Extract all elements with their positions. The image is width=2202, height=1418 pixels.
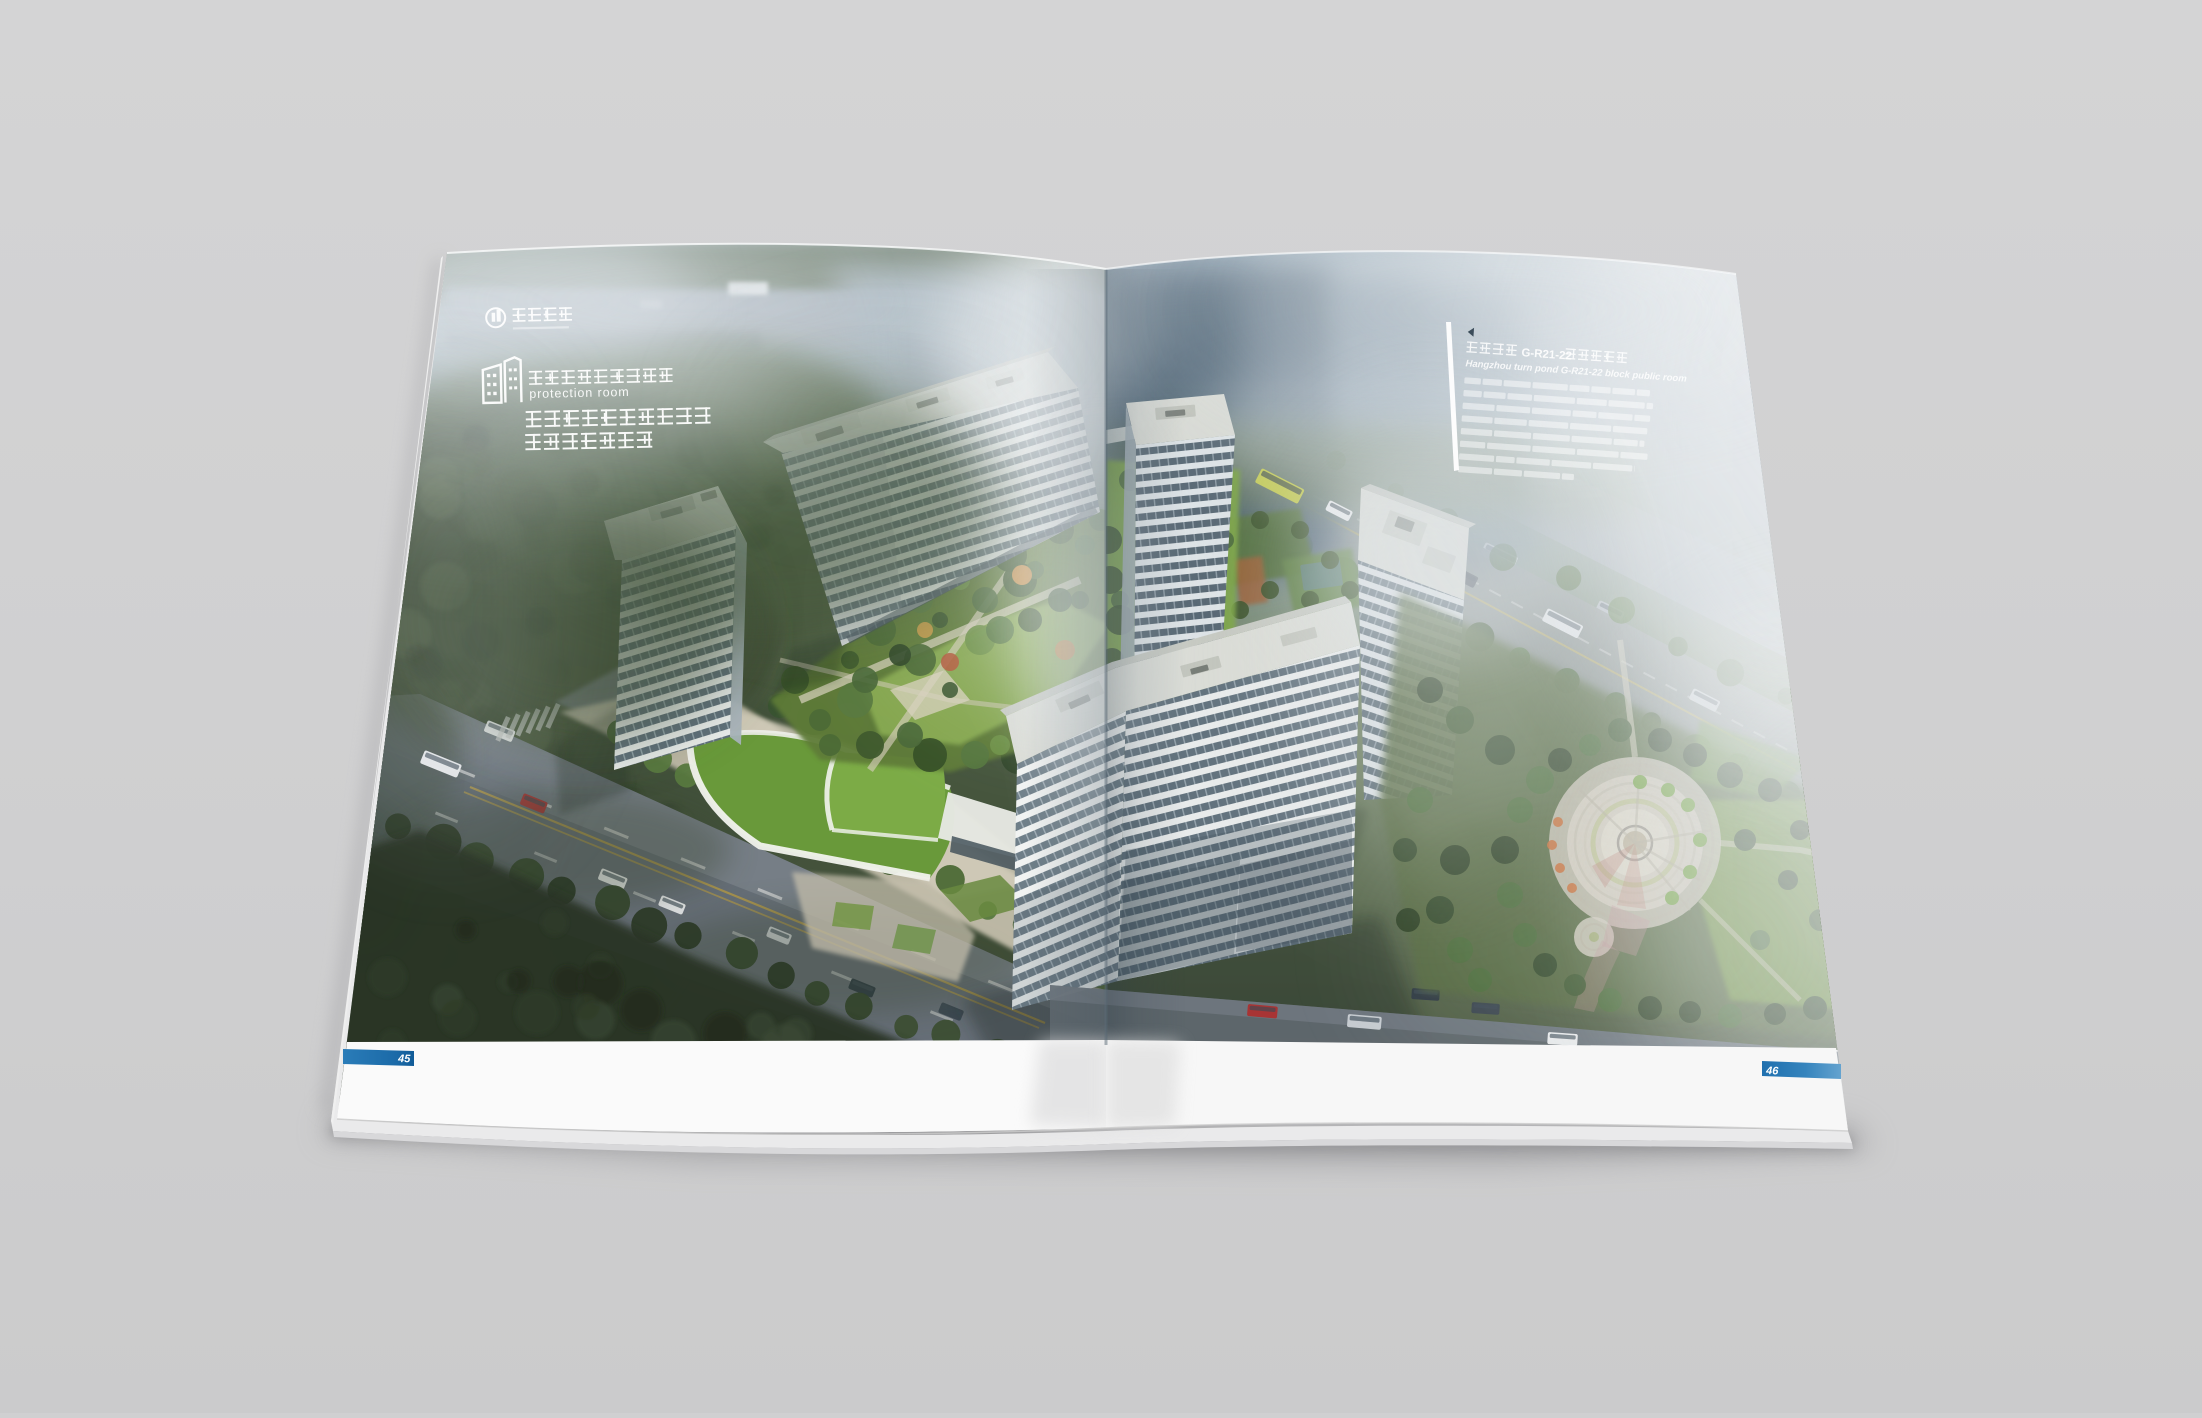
svg-text:protection room: protection room xyxy=(529,385,630,401)
svg-text:46: 46 xyxy=(1765,1065,1780,1077)
svg-text:45: 45 xyxy=(397,1053,411,1065)
